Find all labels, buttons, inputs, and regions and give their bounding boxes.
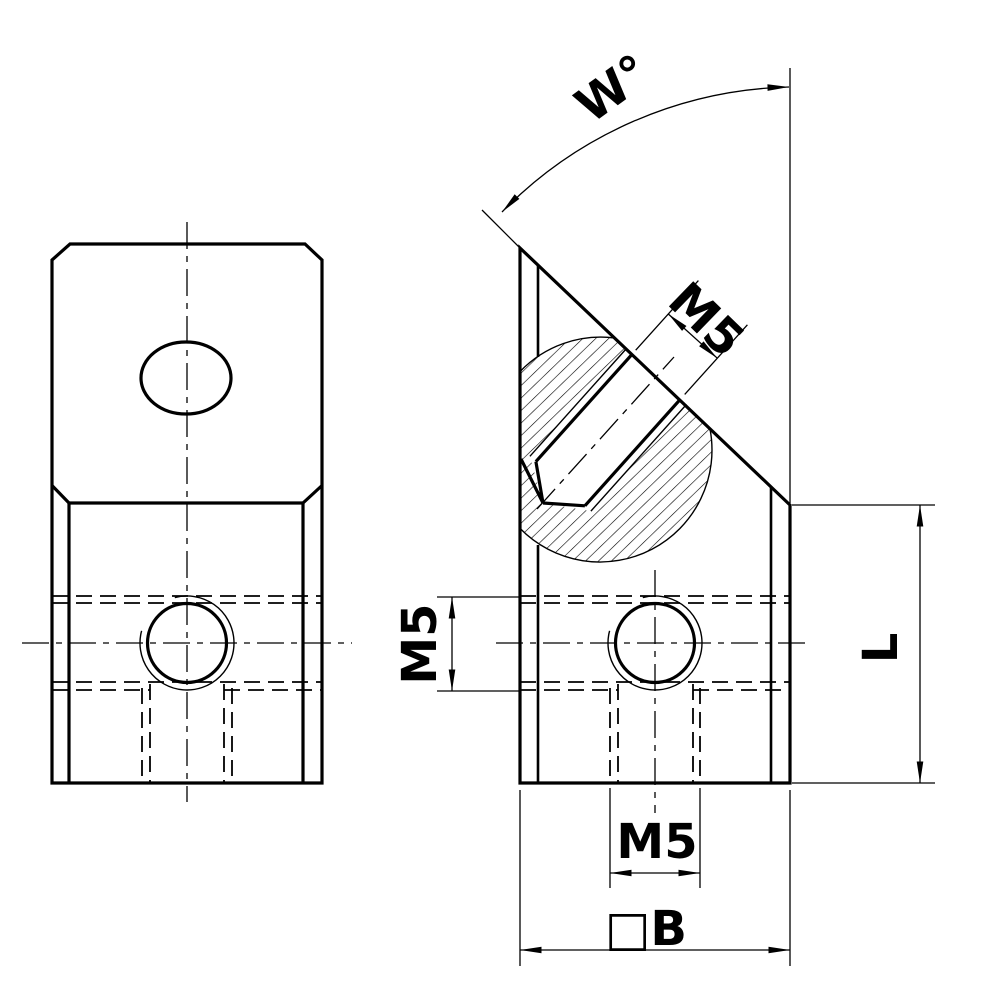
angle-dimension-label: W° — [565, 44, 660, 135]
angled-thread-label: M5 — [657, 272, 754, 369]
technical-drawing: W° M5 M5 L M5 □B — [0, 0, 1000, 1000]
front-ellipse-hole — [141, 342, 231, 414]
angle-arc — [502, 87, 789, 212]
width-label: □B — [605, 901, 687, 957]
front-view — [22, 222, 352, 802]
drawing-canvas: W° M5 M5 L M5 □B — [0, 0, 1000, 1000]
dimension-thread-bottom: M5 — [610, 788, 700, 888]
side-thread-label: M5 — [392, 603, 448, 684]
length-label: L — [853, 633, 909, 664]
bottom-thread-label: M5 — [616, 814, 697, 870]
side-thread-extension-lines — [437, 597, 520, 691]
side-view — [496, 248, 812, 813]
dimension-length: L — [792, 505, 935, 783]
dimension-thread-side: M5 — [392, 597, 520, 691]
